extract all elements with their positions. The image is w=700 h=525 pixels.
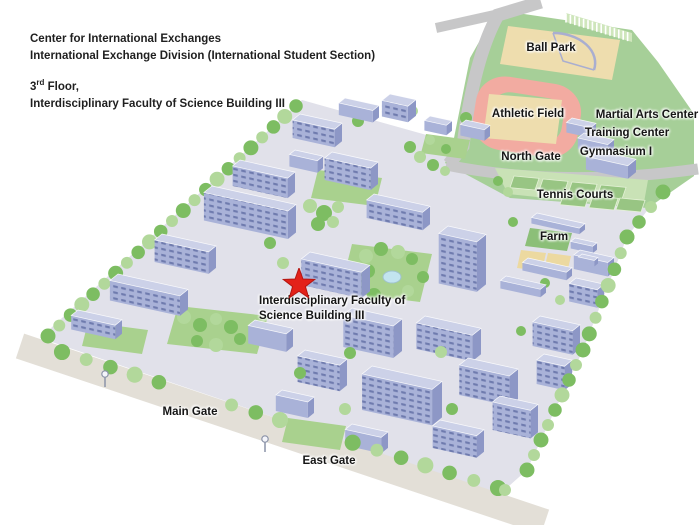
label-training-center: Training Center (585, 127, 669, 139)
header-line-2: International Exchange Division (Interna… (30, 48, 375, 65)
label-athletic-field: Athletic Field (492, 108, 564, 120)
header-floor-line: 3rd Floor, (30, 79, 375, 96)
header-text-block: Center for International Exchanges Inter… (30, 31, 375, 113)
label-north-gate: North Gate (501, 151, 560, 163)
header-spacer (30, 65, 375, 79)
location-star-marker (281, 268, 317, 301)
floor-rest: Floor, (44, 81, 79, 93)
label-main-gate: Main Gate (163, 406, 218, 418)
campus-map-page: Center for International Exchanges Inter… (0, 0, 700, 525)
label-gymnasium-1: Gymnasium I (580, 146, 652, 158)
label-east-gate: East Gate (302, 455, 355, 467)
header-line-4: Interdisciplinary Faculty of Science Bui… (30, 96, 375, 113)
star-icon (281, 268, 317, 301)
header-line-1: Center for International Exchanges (30, 31, 375, 48)
label-tennis-courts: Tennis Courts (537, 189, 613, 201)
label-farm: Farm (540, 231, 568, 243)
label-martial-arts-center: Martial Arts Center (596, 109, 698, 121)
label-ball-park: Ball Park (526, 42, 575, 54)
